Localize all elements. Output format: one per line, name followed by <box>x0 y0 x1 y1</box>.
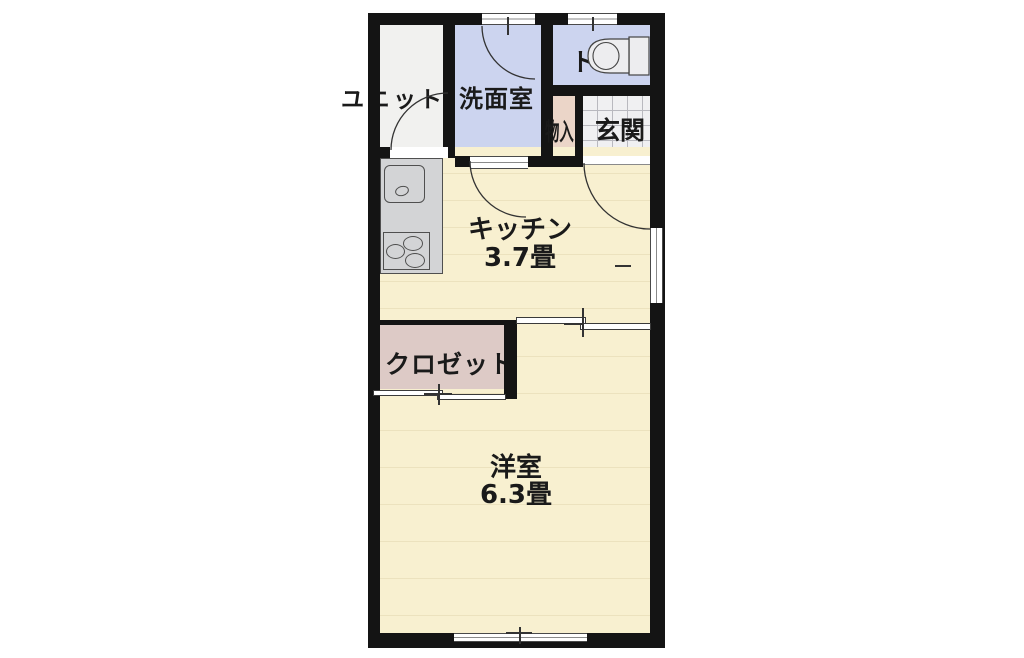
western-room-label: 洋室 6.3畳 <box>453 455 579 509</box>
unit-bath-door-opening <box>390 147 448 158</box>
western-room-name: 洋室 <box>453 455 579 482</box>
closet-sliding-door-tick-h <box>424 393 452 395</box>
entrance-step <box>583 156 650 165</box>
washroom-door-opening <box>470 156 528 169</box>
window-western-tick-v <box>519 627 521 644</box>
window-kitchen-right <box>650 228 663 303</box>
wall-storage-kitchen <box>528 156 583 167</box>
outer-wall-left <box>368 13 380 648</box>
western-room-size: 6.3畳 <box>453 482 579 509</box>
wall-washroom-kitchen-a <box>455 156 470 167</box>
wall-storage-entrance <box>575 85 583 167</box>
window-washroom-top <box>482 13 535 25</box>
window-western-tick-h <box>506 632 532 634</box>
closet-sliding-door-tick-v <box>438 384 440 405</box>
stove-burner-icon <box>405 253 425 268</box>
kitchen-name: キッチン <box>455 216 585 244</box>
storage-label: 物入 <box>545 112 574 147</box>
wall-closet-top <box>368 320 516 325</box>
kitchen-label: キッチン 3.7畳 <box>455 216 585 272</box>
unit-bath-label: ユニット <box>341 80 445 114</box>
window-western-bottom <box>454 633 587 642</box>
wall-closet-right <box>504 320 517 399</box>
kitchen-size: 3.7畳 <box>455 244 585 272</box>
stove-burner-icon <box>386 244 405 259</box>
floor-plan-canvas: ユニット 洗面室 トイレ 物入 玄関 キッチン 3.7畳 クロゼット 洋室 6.… <box>0 0 1024 658</box>
sliding-door-kitchen-tick-h <box>564 323 584 325</box>
closet-sliding-door-b <box>437 394 506 400</box>
wall-unitbath-kitchen-a <box>368 147 390 158</box>
window-washroom-tick <box>507 17 509 35</box>
toilet-label: トイレ <box>571 43 652 79</box>
washroom-label: 洗面室 <box>459 79 534 114</box>
closet-label: クロゼット <box>385 345 515 381</box>
wall-unitbath-kitchen-b <box>448 147 455 158</box>
window-kitchen-tick <box>615 265 631 267</box>
outer-wall-right <box>650 13 665 648</box>
sink-icon <box>384 165 425 203</box>
wall-unitbath-washroom <box>443 13 455 158</box>
wall-toilet-entrance <box>541 85 665 96</box>
sliding-door-kitchen-western-b <box>580 323 651 330</box>
window-toilet-tick <box>592 17 594 31</box>
entrance-label: 玄関 <box>595 111 645 147</box>
stove-burner-icon <box>403 236 423 251</box>
